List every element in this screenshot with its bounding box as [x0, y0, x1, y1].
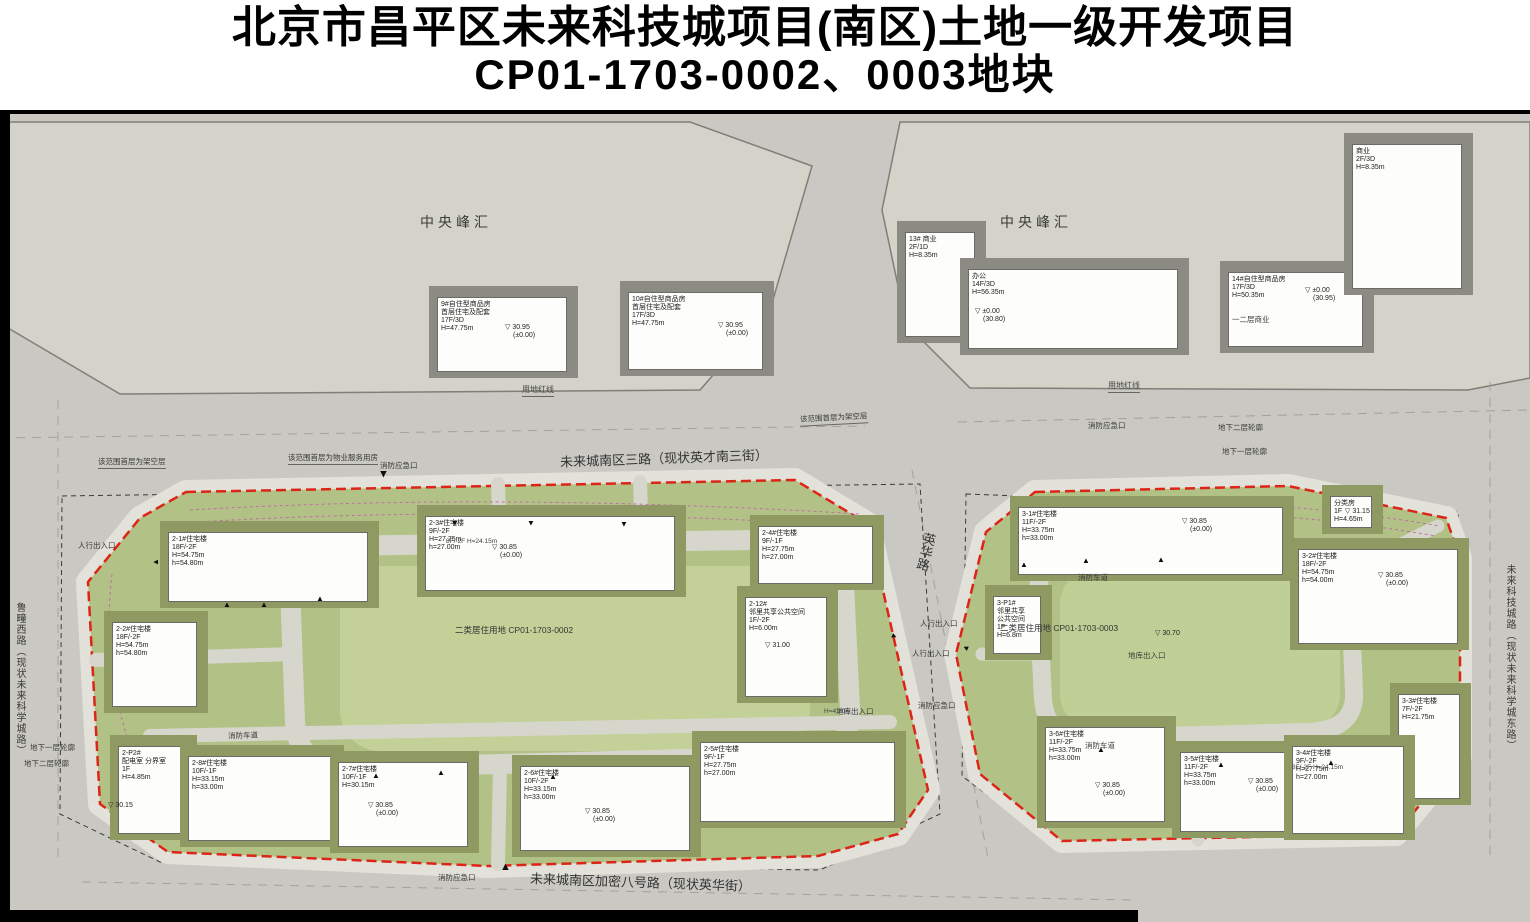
elevation-marker: ▽ 30.95(±0.00) [505, 324, 535, 339]
annotation-label: 人行出入口 [912, 648, 950, 659]
annotation-label: 人行出入口 [920, 618, 958, 629]
annotation-label: 未来科技城路（现状未来科学城东路） [1502, 564, 1517, 751]
building-label: 14#自住型商品房17F/3DH=50.35m [1232, 276, 1286, 300]
sheet-title-block: 北京市昌平区未来科技城项目(南区)土地一级开发项目 CP01-1703-0002… [0, 0, 1530, 114]
building-label: 10#自住型商品房首层住宅及配套17F/3DH=47.75m [632, 296, 686, 328]
elevation-marker: ▽ 30.15 [108, 802, 133, 810]
annotation-label: 该范围首层为物业服务用房 [288, 452, 378, 465]
annotation-label: 消防车道 [228, 729, 258, 741]
sheet-edge-bottom [0, 910, 1138, 922]
entrance-arrow: ▲ [152, 558, 160, 566]
building-label: 2-4#住宅楼9F/-1FH=27.75mh=27.00m [762, 530, 797, 562]
site-plan-sheet: { "title": { "line1": "北京市昌平区未来科技城项目(南区)… [0, 0, 1530, 922]
elevation-marker: ▽ 31.00 [765, 642, 790, 650]
building-label: 商业2F/3DH=8.35m [1356, 148, 1385, 172]
building-label: 9#自住型商品房首层住宅及配套17F/3DH=47.75m [441, 301, 491, 333]
entrance-arrow: ▲ [620, 520, 628, 528]
building-label: 2-12#邻里共享公共空间1F/-2FH=6.00m [749, 601, 805, 633]
entrance-arrow: ▲ [1020, 561, 1028, 569]
entrance-arrow: ▲ [1157, 556, 1165, 564]
building-footprint: 3-1#住宅楼11F/-2FH=33.75mh=33.00m [1018, 507, 1283, 575]
building-label: 13# 商业2F/1DH=8.35m [909, 236, 938, 260]
building-footprint: 2-7#住宅楼10F/-1FH=30.15m [338, 762, 468, 847]
annotation-label: 消防应急口 [438, 872, 476, 883]
annotation-label: 消防车道 [1078, 572, 1108, 583]
annotation-label: 地下一层轮廓 [1222, 446, 1267, 457]
building-footprint: 3-2#住宅楼18F/-2FH=54.75mh=54.00m [1298, 549, 1458, 644]
elevation-marker: ▽ 30.70 [1155, 630, 1180, 638]
building-label: 2-8#住宅楼10F/-1FH=33.15mh=33.00m [192, 760, 227, 792]
elevation-marker: ▽ 30.85(±0.00) [1248, 778, 1278, 793]
entrance-arrow: ▲ [260, 601, 268, 609]
elevation-marker: ▽ ±0.00(30.80) [975, 308, 1005, 323]
annotation-label: 地下二层轮廓 [24, 758, 69, 769]
building-footprint: 2-4#住宅楼9F/-1FH=27.75mh=27.00m [758, 526, 873, 584]
building-label: 2-5#住宅楼9F/-1FH=27.75mh=27.00m [704, 746, 739, 778]
plan-area: 9#自住型商品房首层住宅及配套17F/3DH=47.75m10#自住型商品房首层… [0, 114, 1530, 922]
elevation-marker: ▽ 30.85(±0.00) [492, 544, 522, 559]
building-label: 3-5#住宅楼11F/-2FH=33.75mh=33.00m [1184, 756, 1219, 788]
annotation-label: 中央峰汇 [1000, 212, 1072, 232]
annotation-label: 鲁疃西路（现状未来科学城路） [12, 602, 27, 756]
annotation-label: 8F/-2F H=24.15m [1292, 764, 1343, 771]
elevation-marker: ▽ 30.85(±0.00) [1378, 572, 1408, 587]
annotation-label: 用地红线 [522, 384, 554, 397]
building-label: 2-1#住宅楼18F/-2FH=54.75mh=54.80m [172, 536, 207, 568]
building-footprint: 14#自住型商品房17F/3DH=50.35m [1228, 272, 1363, 347]
building-footprint: 3-4#住宅楼9F/-2FH=27.75mh=27.00m [1292, 746, 1404, 834]
entrance-arrow: ▲ [316, 595, 324, 603]
building-footprint: 2-1#住宅楼18F/-2FH=54.75mh=54.80m [168, 532, 368, 602]
annotation-label: 该范围首层为架空层 [98, 456, 166, 469]
entrance-arrow: ▲ [1082, 557, 1090, 565]
building-footprint: 2-8#住宅楼10F/-1FH=33.15mh=33.00m [188, 756, 333, 841]
entrance-arrow: ▲ [1217, 761, 1225, 769]
building-footprint: 商业2F/3DH=8.35m [1352, 144, 1462, 289]
project-title-line2: CP01-1703-0002、0003地块 [0, 52, 1530, 98]
elevation-marker: ▽ ±0.00(30.95) [1305, 287, 1335, 302]
annotation-label: 中央峰汇 [420, 212, 492, 232]
building-label: 3-6#住宅楼11F/-2FH=33.75mh=33.00m [1049, 731, 1084, 763]
elevation-marker: ▽ 31.15 [1345, 508, 1370, 516]
building-label: 3-2#住宅楼18F/-2FH=54.75mh=54.00m [1302, 553, 1337, 585]
elevation-marker: ▽ 30.85(±0.00) [1182, 518, 1212, 533]
elevation-marker: ▽ 30.85(±0.00) [1095, 782, 1125, 797]
building-footprint: 2-P2#配电室 分界室1FH=4.85m [118, 746, 186, 834]
entrance-arrow: ▲ [500, 862, 511, 873]
building-label: 3-P1#邻里共享公共空间1FH=6.8m [997, 600, 1025, 640]
annotation-label: 二类居住用地 CP01-1703-0003 [1000, 622, 1118, 634]
annotation-label: 人行出入口 [78, 540, 116, 551]
annotation-label: 地库出入口 [1128, 650, 1166, 661]
annotation-label: 用地红线 [1108, 380, 1140, 393]
building-label: 2-2#住宅楼18F/-2FH=54.75mh=54.80m [116, 626, 151, 658]
entrance-arrow: ▲ [1327, 759, 1335, 767]
building-label: 办公14F/3DH=56.35m [972, 273, 1005, 297]
annotation-label: 一二层商业 [1232, 314, 1270, 325]
entrance-arrow: ▲ [1097, 746, 1105, 754]
entrance-arrow: ▲ [437, 769, 445, 777]
building-label: 2-P2#配电室 分界室1FH=4.85m [122, 750, 166, 782]
elevation-marker: ▽ 30.85(±0.00) [585, 808, 615, 823]
entrance-arrow: ▲ [527, 519, 535, 527]
annotation-label: H=4.20m [824, 708, 851, 715]
annotation-label: 消防应急口 [918, 700, 956, 711]
annotation-label: 地下二层轮廓 [1218, 422, 1263, 433]
building-footprint: 2-2#住宅楼18F/-2FH=54.75mh=54.80m [112, 622, 197, 707]
building-footprint: 2-5#住宅楼9F/-1FH=27.75mh=27.00m [700, 742, 895, 822]
building-label: 3-1#住宅楼11F/-2FH=33.75mh=33.00m [1022, 511, 1057, 543]
elevation-marker: ▽ 30.85(±0.00) [368, 802, 398, 817]
project-title-line1: 北京市昌平区未来科技城项目(南区)土地一级开发项目 [0, 4, 1530, 52]
entrance-arrow: ▲ [549, 773, 557, 781]
entrance-arrow: ▲ [372, 772, 380, 780]
sheet-edge-left [0, 114, 10, 922]
entrance-arrow: ▲ [451, 519, 459, 527]
building-footprint: 9#自住型商品房首层住宅及配套17F/3DH=47.75m [437, 297, 567, 372]
entrance-arrow: ▲ [223, 601, 231, 609]
building-label: 3-3#住宅楼7F/-2FH=21.75m [1402, 698, 1437, 722]
annotation-label: 8F/-2F H=24.15m [446, 538, 497, 545]
building-footprint: 2-3#住宅楼9F/-2FH=27.75mh=27.00m [425, 516, 675, 591]
annotation-label: 消防应急口 [1088, 420, 1126, 431]
elevation-marker: ▽ 30.95(±0.00) [718, 322, 748, 337]
entrance-arrow: ▲ [378, 468, 389, 479]
annotation-label: 二类居住用地 CP01-1703-0002 [455, 624, 573, 636]
annotation-label: 地下一层轮廓 [30, 742, 75, 753]
